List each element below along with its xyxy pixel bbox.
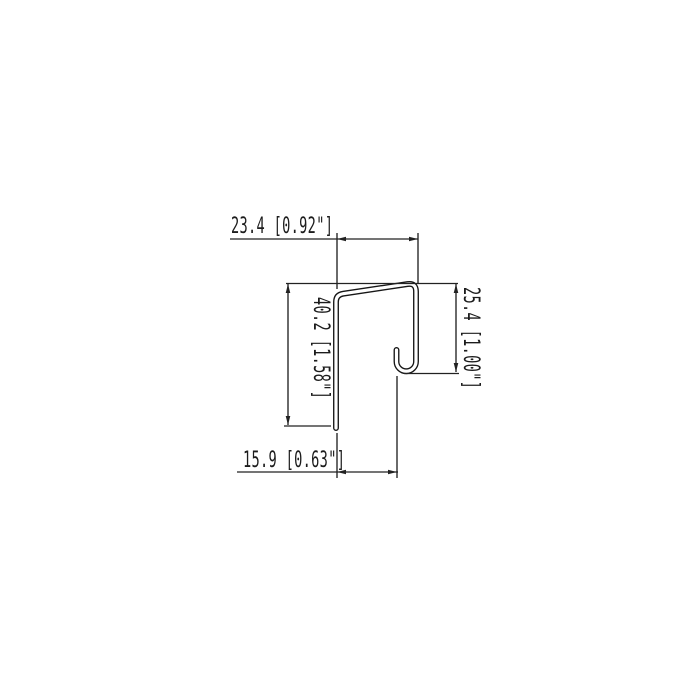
dimension-top-width: 23.4 [0.92"] [230,214,418,289]
dim-label-right-depth: 25.4 [1.00"] [458,287,483,389]
dim-label-top-width: 23.4 [0.92"] [231,214,333,239]
profile-sheet-outline [336,284,416,428]
profile-sheet-core [336,284,416,428]
arrowhead-right [388,470,397,475]
arrowhead-up [286,284,291,293]
arrowhead-left [337,237,346,242]
dim-label-bottom-offset: 15.9 [0.63"] [243,448,345,473]
arrowhead-up [454,284,459,293]
dimension-left-height: 40.2 [1.58"] [284,284,458,427]
profile-cross-section [336,284,416,428]
arrowhead-right [409,237,418,242]
dim-label-left-height: 40.2 [1.58"] [308,297,333,399]
technical-drawing-canvas: 23.4 [0.92"] 40.2 [1.58"] 25.4 [1.00"] [0,0,700,700]
arrowhead-down [286,416,291,425]
drawing-page: 23.4 [0.92"] 40.2 [1.58"] 25.4 [1.00"] [0,0,700,700]
arrowhead-down [454,363,459,372]
